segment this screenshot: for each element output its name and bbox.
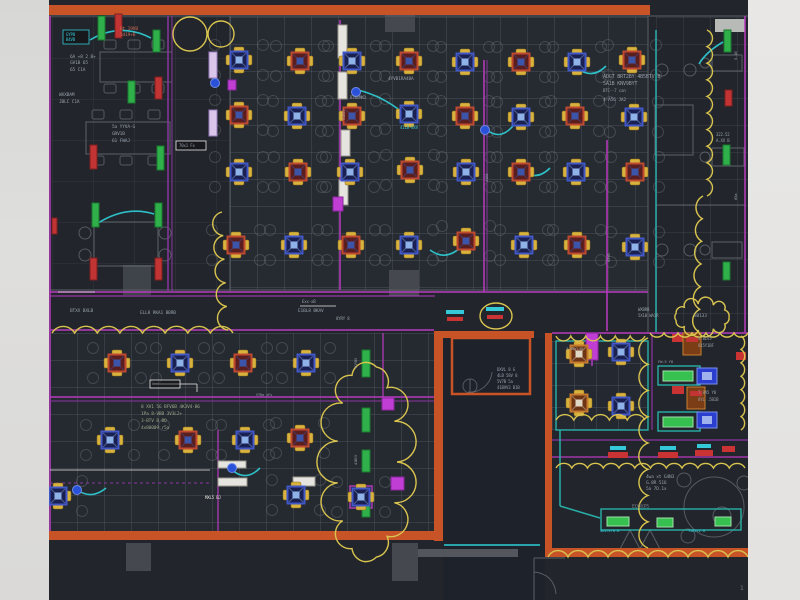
diffuser-center [297, 58, 304, 65]
chair-circle [315, 475, 326, 486]
greenH-fixture [663, 371, 693, 381]
chair-circle [323, 96, 334, 107]
green-fixture [362, 450, 370, 472]
chair-circle [594, 126, 605, 137]
diffuser-center [303, 360, 310, 367]
chair-circle [654, 257, 665, 268]
annotation-text: 4AV51YB-B [600, 528, 620, 533]
greenH-fixture [663, 417, 693, 427]
diffuser-center [294, 113, 301, 120]
chair-circle [547, 152, 558, 163]
diffuser-center [233, 242, 240, 249]
chair-circle [653, 97, 664, 108]
annotation-text: 6A +8 2 B+ [70, 54, 96, 60]
area-fill [126, 543, 151, 571]
chair-circle [269, 152, 280, 163]
diffuser-center [463, 238, 470, 245]
chair-circle [654, 227, 665, 238]
red-fixture [90, 145, 97, 169]
chair-circle [596, 255, 607, 266]
chair-circle [605, 127, 616, 138]
red-fixture [90, 258, 97, 280]
wall-orange [434, 331, 443, 541]
cyanBar-fixture [446, 310, 464, 314]
chair-circle [199, 343, 210, 354]
chair-circle [323, 126, 334, 137]
chair-circle [88, 373, 99, 384]
green-fixture [724, 30, 731, 52]
diffuser-center [462, 113, 469, 120]
annotation-text: 41BVV3 B1B [497, 385, 520, 390]
chair-circle [436, 42, 447, 53]
page-margin-right [748, 0, 800, 600]
diffuser-center [349, 58, 356, 65]
annotation-text: 815Y1BF [698, 343, 715, 348]
chair-circle [595, 182, 606, 193]
chair-circle [258, 152, 269, 163]
chair-circle [381, 150, 392, 161]
redH-fixture [722, 446, 735, 452]
chair-circle [495, 255, 506, 266]
chair-circle [214, 373, 225, 384]
chair-circle [492, 97, 503, 108]
cyanBar-fixture [486, 307, 504, 311]
chair-outline [128, 40, 140, 49]
chair-outline [104, 40, 116, 49]
chair-circle [319, 418, 330, 429]
green-fixture [362, 408, 370, 432]
green-fixture [157, 146, 164, 170]
chair-circle [88, 343, 99, 354]
chair-circle [262, 343, 273, 354]
chair-circle [136, 373, 147, 384]
green-fixture [153, 30, 160, 52]
magu-fixture [333, 197, 343, 211]
annotation-text: 70x1 Fx [179, 143, 196, 148]
diffuser-center [358, 494, 365, 501]
chair-circle [129, 450, 140, 461]
revision-cloud [213, 212, 228, 330]
diffuser-center [236, 112, 243, 119]
diffuser-center [618, 349, 625, 356]
green-fixture [723, 145, 730, 165]
annotation-text: 3-8BYL48 [566, 346, 584, 351]
area-fill [392, 543, 418, 581]
chair-circle [268, 126, 279, 137]
wall-orange [49, 531, 443, 540]
chair-circle [265, 255, 276, 266]
diffuser-center [406, 111, 413, 118]
chair-circle [265, 225, 276, 236]
chair-circle [151, 343, 162, 354]
diffuser-center [463, 169, 470, 176]
chair-circle [546, 126, 557, 137]
annotation-text: ELL8 RKA1 BBRB [140, 310, 176, 316]
chair-circle [207, 225, 218, 236]
revision-cloud [639, 338, 648, 548]
chair-circle [258, 182, 269, 193]
chair-circle [684, 64, 696, 76]
chair-circle [654, 182, 665, 193]
chair-circle [540, 182, 551, 193]
chair-circle [77, 476, 88, 487]
revision-cloud [741, 336, 745, 430]
annotation-text: 5A1B KNV9BYT [603, 81, 637, 87]
table-outline [94, 222, 158, 266]
green-fixture [155, 203, 162, 227]
annotation-text: MXL5 BJ [205, 495, 221, 500]
annotation-text: AOGT BRT2BY 4B5BTV B [603, 74, 660, 80]
magu-fixture [382, 398, 394, 410]
annotation-text: 65 C1A [70, 67, 86, 73]
diffuser-center [521, 242, 528, 249]
diffuser-center [518, 169, 525, 176]
green-fixture [362, 350, 370, 377]
redH-fixture [695, 450, 713, 456]
chair-circle [258, 125, 269, 136]
chair-circle [492, 127, 503, 138]
diffuser-center [574, 242, 581, 249]
chair-circle [429, 180, 440, 191]
diffuser-center [518, 114, 525, 121]
magu-fixture [391, 477, 404, 490]
annotation-text: 41B5 [484, 173, 489, 182]
annotation-text: DXVL 8 G [497, 367, 516, 372]
chair-circle [428, 124, 439, 135]
lav-fixture [209, 52, 217, 78]
chair-circle [332, 507, 343, 518]
chair-circle [207, 255, 218, 266]
chair-circle [548, 42, 559, 53]
chair-circle [492, 72, 503, 83]
chair-circle [495, 225, 506, 236]
redH-fixture [487, 315, 503, 319]
annotation-text: 81YB5 [354, 358, 358, 368]
chair-circle [268, 96, 279, 107]
diffuser-center [618, 403, 625, 410]
chair-circle [325, 373, 336, 384]
table-outline [655, 105, 693, 155]
chair-circle [277, 343, 288, 354]
chair-circle [380, 507, 391, 518]
chair-circle [319, 448, 330, 459]
unit-detail [686, 337, 698, 342]
diffuser-center [576, 400, 583, 407]
chair-circle [437, 251, 448, 262]
annotation-text: 8YL .5B1B [698, 397, 719, 402]
annotation-text: WXBRB [638, 307, 650, 312]
chair-circle [369, 152, 380, 163]
red-fixture [52, 218, 57, 234]
chair-circle [267, 505, 278, 516]
annotation-text: 8YRY 8 [336, 316, 350, 321]
diffuser-center [407, 167, 414, 174]
diffuser-center [348, 242, 355, 249]
label-tag [150, 380, 180, 388]
green-fixture [128, 81, 135, 103]
annotation-text: 4wa xt G4N3 [646, 474, 675, 480]
cyanBar-fixture [697, 444, 711, 448]
page-margin-left [0, 0, 49, 600]
wall-orange [49, 5, 650, 15]
revision-balloon [173, 17, 207, 51]
white-fixture [218, 478, 247, 486]
annotation-text: 4LB 58V 8 [497, 373, 518, 378]
annotation-text: 4 8LV5 [698, 336, 712, 341]
annotation-text: 5a YYVA-G [112, 124, 135, 130]
chair-outline [104, 84, 116, 93]
floor-plan-drawing[interactable]: GYP8B4VB6A +8 2 B+GV1B 6565 C1AWXXBAMJBL… [0, 0, 800, 600]
diffuser-center [242, 437, 249, 444]
annotation-text: 5d19+B [120, 32, 136, 38]
red-fixture [155, 258, 162, 280]
diffuser-center [462, 59, 469, 66]
diffuser-center [573, 169, 580, 176]
chair-circle [258, 40, 269, 51]
chair-circle [437, 152, 448, 163]
annotation-text: 5V7B 5a [497, 379, 514, 384]
chair-circle [380, 477, 391, 488]
chair-circle [255, 225, 266, 236]
chair-circle [159, 450, 170, 461]
chair-circle [677, 473, 691, 487]
chair-circle [492, 42, 503, 53]
chair-circle [603, 40, 614, 51]
chair-circle [654, 152, 665, 163]
chair-circle [277, 373, 288, 384]
annotation-text: Bt 19VB [120, 26, 138, 32]
diffuser-center [291, 242, 298, 249]
chair-circle [210, 95, 221, 106]
annotation-text: GRV1B [112, 131, 125, 137]
junction-blob [228, 464, 237, 473]
annotation-text: WXXBAM [59, 92, 75, 98]
annotation-text: Y5B1Y2-B [688, 528, 706, 533]
chair-outline [148, 110, 160, 119]
chair-circle [436, 72, 447, 83]
chair-circle [264, 450, 275, 461]
chair-circle [436, 96, 447, 107]
diffuser-center [295, 169, 302, 176]
diffuser-center [177, 360, 184, 367]
annotation-text: 85YB [606, 253, 611, 262]
chair-circle [129, 420, 140, 431]
chair-circle [81, 450, 92, 461]
annotation-text: 5X1B WA1R [638, 313, 659, 318]
chair-circle [429, 150, 440, 161]
diffuser-center [297, 435, 304, 442]
annotation-text: BTC--7 can [603, 88, 626, 93]
chair-circle [596, 225, 607, 236]
redH-fixture [658, 452, 678, 458]
chair-circle [267, 475, 278, 486]
chair-circle [271, 41, 282, 52]
chair-circle [255, 255, 266, 266]
chair-circle [79, 249, 91, 261]
chair-circle [77, 506, 88, 517]
annotation-text: 4-A5G JA2 [603, 97, 626, 103]
diffuser-center [293, 492, 300, 499]
diffuser-center [114, 360, 121, 367]
redH-fixture [672, 386, 684, 394]
chair-circle [437, 221, 448, 232]
annotation-text: T 8A5 Y8 [698, 390, 717, 395]
annotation-text: 41BV5 [354, 455, 358, 465]
junction-blob [211, 79, 220, 88]
annotation-text: BTXX BXLB [70, 308, 93, 314]
chair-circle [485, 152, 496, 163]
diffuser-center [107, 437, 114, 444]
wall-line [560, 506, 600, 518]
diffuser-center [572, 113, 579, 120]
annotation-text: A.XX B [716, 138, 730, 143]
chair-circle [258, 95, 269, 106]
annotation-text: 3-BTV B BQ [141, 418, 167, 424]
chair-circle [271, 418, 282, 429]
chair-circle [485, 251, 496, 262]
chair-circle [548, 72, 559, 83]
chair-circle [79, 227, 91, 239]
diffuser-center [236, 169, 243, 176]
diffuser-center [349, 113, 356, 120]
diffuser-center [347, 169, 354, 176]
annotation-text: VTRa xFx [256, 393, 273, 397]
annotation-text: BTWXMKD [350, 95, 367, 100]
chair-circle [81, 420, 92, 431]
diffuser-center [518, 59, 525, 66]
white-fixture [341, 130, 350, 156]
chair-circle [437, 182, 448, 193]
annotation-text: GV1B 65 [70, 60, 88, 66]
flex-duct-arc [95, 211, 154, 225]
annotation-text: 8 XV1 5G BFV6B 4K3V4-B6 [141, 404, 200, 410]
chair-circle [269, 182, 280, 193]
annotation-text: 322.52 [716, 132, 730, 137]
annotation-text: 3B133 [694, 313, 707, 319]
red-fixture [155, 77, 162, 99]
annotation-text: G.8R 516 [646, 480, 667, 486]
chair-circle [271, 448, 282, 459]
chair-circle [547, 182, 558, 193]
diffuser-center [576, 351, 583, 358]
annotation-text: 4YVB1RA4BA [388, 76, 414, 82]
cyanBar-fixture [660, 446, 676, 450]
chair-circle [381, 180, 392, 191]
chair-circle [316, 126, 327, 137]
area-fill [418, 549, 518, 557]
chair-circle [199, 373, 210, 384]
chair-circle [653, 127, 664, 138]
greenH-fixture [607, 517, 629, 526]
diffuser-center [185, 437, 192, 444]
revision-cloud [556, 463, 745, 468]
diffuser-center [236, 57, 243, 64]
chair-circle [370, 255, 381, 266]
diffuser-center [240, 360, 247, 367]
annotation-text: 1Pa 8-VBB 3V3L2+ [141, 411, 182, 417]
diffuser-center [55, 493, 62, 500]
annotation-text: FW-5 Y8 [658, 359, 674, 364]
chair-circle [136, 343, 147, 354]
chair-outline [120, 110, 132, 119]
table-outline [712, 242, 742, 258]
chair-circle [325, 343, 336, 354]
chair-circle [436, 126, 447, 137]
chair-circle [492, 182, 503, 193]
white-fixture [338, 72, 347, 99]
chair-circle [369, 182, 380, 193]
chair-circle [428, 94, 439, 105]
chair-circle [656, 244, 668, 256]
annotation-text: JBLC C1A [59, 99, 80, 105]
magu-fixture [228, 80, 236, 90]
annotation-text: 41LB-BXV [400, 125, 419, 130]
revision-cloud [693, 196, 703, 332]
annotation-text: 5a 7D.1x [646, 486, 667, 492]
lav-fixture [209, 110, 217, 136]
chair-circle [370, 225, 381, 236]
chair-circle [214, 343, 225, 354]
junction-blob [481, 126, 490, 135]
chair-circle [316, 96, 327, 107]
chair-outline [120, 156, 132, 165]
annotation-text: 4x80009 r5a [141, 425, 170, 431]
green-fixture [98, 16, 105, 40]
cyanBar-fixture [610, 446, 626, 450]
redH-fixture [447, 317, 463, 321]
chair-circle [264, 420, 275, 431]
chair-circle [258, 70, 269, 81]
annotation-text: E1BL8 BKAV [298, 308, 324, 314]
greenH-fixture [657, 518, 673, 527]
diffuser-center [631, 114, 638, 121]
chair-circle [210, 182, 221, 193]
chair-circle [210, 152, 221, 163]
chair-circle [315, 505, 326, 516]
unit-detail [702, 372, 712, 380]
red-fixture [725, 90, 732, 106]
chair-outline [92, 110, 104, 119]
annotation-text: Exx-xB [302, 299, 316, 304]
chair-circle [700, 152, 710, 162]
chair-circle [700, 245, 710, 255]
green-fixture [92, 203, 99, 227]
chair-circle [485, 182, 496, 193]
chair-circle [540, 152, 551, 163]
annotation-text: 81B5Y [341, 108, 346, 120]
diffuser-center [632, 244, 639, 251]
annotation-text: 1 [740, 585, 744, 592]
chair-circle [159, 227, 171, 239]
chair-circle [492, 152, 503, 163]
diffuser-center [406, 58, 413, 65]
chair-circle [262, 373, 273, 384]
wall-orange [545, 333, 552, 556]
annotation-text: 85a [733, 194, 738, 200]
green-fixture [723, 262, 730, 280]
chair-circle [595, 152, 606, 163]
diffuser-center [406, 242, 413, 249]
greenH-fixture [715, 517, 731, 526]
junction-blob [73, 486, 82, 495]
chair-circle [380, 255, 391, 266]
revision-cloud [556, 415, 645, 420]
screenshot-root: GYP8B4VB6A +8 2 B+GV1B 6565 C1AWXXBAMJBL… [0, 0, 800, 600]
diffuser-center [574, 59, 581, 66]
annotation-text: B4VB [66, 37, 76, 42]
chair-circle [485, 221, 496, 232]
chair-circle [546, 96, 557, 107]
